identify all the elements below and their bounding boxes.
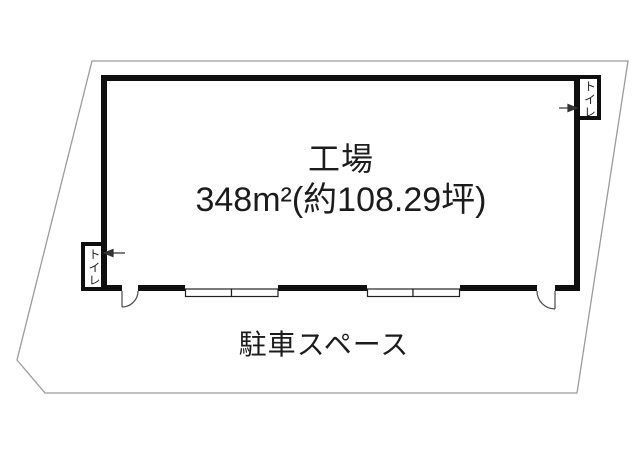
toilet-label-top-right: トイレ <box>580 80 599 118</box>
sliding-door-1 <box>186 289 279 297</box>
sliding-door-panel <box>413 289 460 297</box>
door-opening-left <box>122 284 138 294</box>
floorplan: 工場 348m²(約108.29坪) 駐車スペース トイレ トイレ <box>0 0 640 453</box>
floorplan-canvas <box>0 0 640 453</box>
sliding-door-panel <box>186 289 232 297</box>
room-label: 工場 <box>101 143 581 175</box>
door-arc <box>537 291 555 309</box>
toilet-label-bottom-left: トイレ <box>85 247 103 288</box>
sliding-door-2 <box>368 289 460 297</box>
sliding-door-panel <box>368 289 414 297</box>
door-swing-right <box>537 291 555 309</box>
door-opening-right <box>537 284 555 294</box>
parking-space-label: 駐車スペース <box>104 331 544 359</box>
room-area-label: 348m²(約108.29坪) <box>101 183 581 217</box>
sliding-door-panel <box>232 289 279 297</box>
